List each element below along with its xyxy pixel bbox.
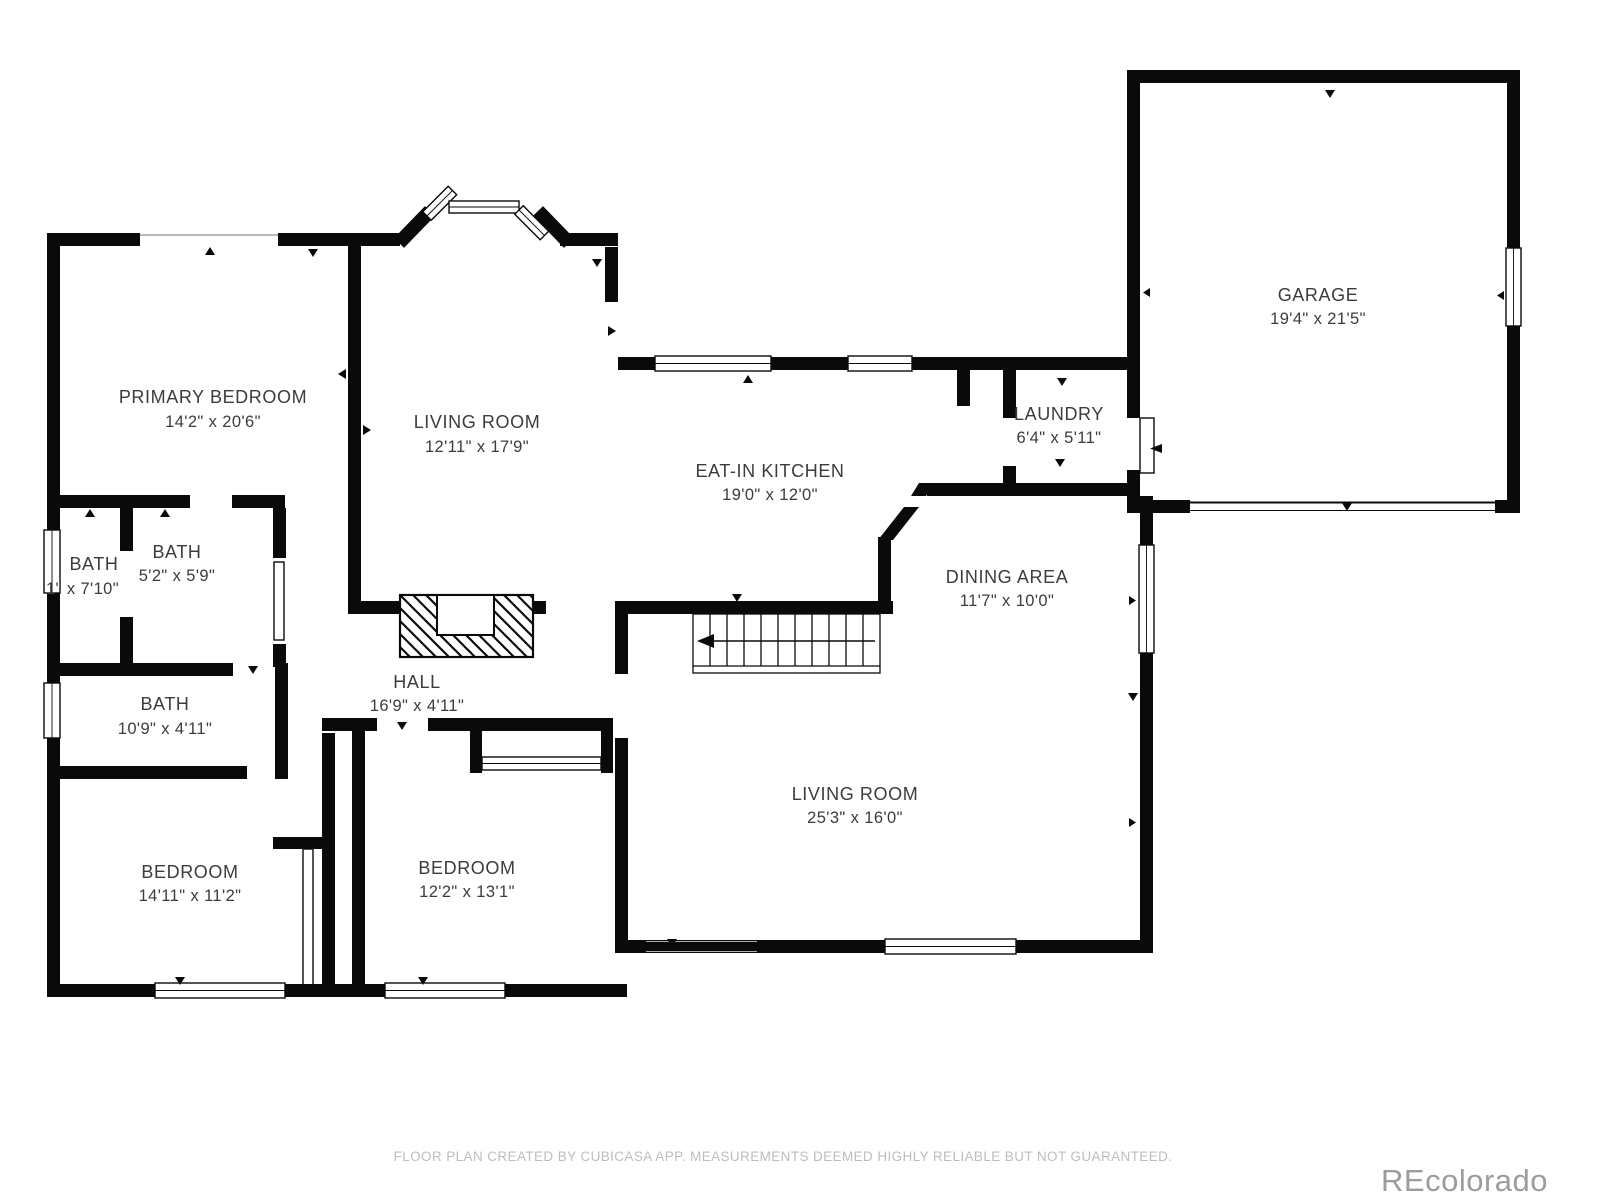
room-dims-bath-1: 1" x 7'10" xyxy=(46,580,119,598)
room-dims-bedroom-2: 12'2" x 13'1" xyxy=(419,883,515,901)
room-label-dining-area: DINING AREA xyxy=(946,567,1069,587)
room-dims-hall: 16'9" x 4'11" xyxy=(370,697,464,715)
room-dims-bedroom-1: 14'11" x 11'2" xyxy=(139,887,242,905)
room-label-garage: GARAGE xyxy=(1278,285,1359,305)
closet-door-leaf xyxy=(303,849,313,985)
bay-window xyxy=(399,186,569,243)
door-window-markers xyxy=(85,90,1504,985)
room-dims-garage: 19'4" x 21'5" xyxy=(1270,310,1366,328)
room-label-bath-3: BATH xyxy=(140,694,189,714)
laundry-garage-door xyxy=(1140,418,1162,473)
bath-door-leaf xyxy=(274,562,284,640)
staircase xyxy=(693,614,880,673)
room-label-primary-bedroom: PRIMARY BEDROOM xyxy=(119,387,307,407)
recolorado-watermark: REcolorado xyxy=(1381,1163,1548,1198)
room-dims-bath-3: 10'9" x 4'11" xyxy=(118,720,212,738)
room-labels: PRIMARY BEDROOM 14'2" x 20'6" LIVING ROO… xyxy=(46,285,1366,905)
room-label-bath-1: BATH xyxy=(69,554,118,574)
room-label-bedroom-1: BEDROOM xyxy=(141,862,238,882)
top-window-line xyxy=(140,234,278,236)
room-dims-living-room-lower: 25'3" x 16'0" xyxy=(807,809,903,827)
footer-disclaimer: FLOOR PLAN CREATED BY CUBICASA APP. MEAS… xyxy=(394,1149,1173,1164)
room-dims-bath-2: 5'2" x 5'9" xyxy=(139,567,216,585)
room-dims-laundry: 6'4" x 5'11" xyxy=(1017,429,1102,447)
walls xyxy=(47,70,1520,997)
floor-plan-drawing: PRIMARY BEDROOM 14'2" x 20'6" LIVING ROO… xyxy=(0,0,1600,1200)
room-label-bath-2: BATH xyxy=(152,542,201,562)
room-dims-living-room-upper: 12'11" x 17'9" xyxy=(425,438,529,456)
room-label-living-room-lower: LIVING ROOM xyxy=(792,784,919,804)
floor-plan-page: PRIMARY BEDROOM 14'2" x 20'6" LIVING ROO… xyxy=(0,0,1600,1200)
room-dims-eat-in-kitchen: 19'0" x 12'0" xyxy=(722,486,818,504)
fireplace xyxy=(400,595,533,657)
room-label-laundry: LAUNDRY xyxy=(1014,404,1104,424)
room-label-eat-in-kitchen: EAT-IN KITCHEN xyxy=(695,461,844,481)
room-label-living-room-upper: LIVING ROOM xyxy=(414,412,541,432)
room-label-hall: HALL xyxy=(393,672,440,692)
room-dims-dining-area: 11'7" x 10'0" xyxy=(960,592,1054,610)
room-dims-primary-bedroom: 14'2" x 20'6" xyxy=(165,413,261,431)
room-label-bedroom-2: BEDROOM xyxy=(418,858,515,878)
